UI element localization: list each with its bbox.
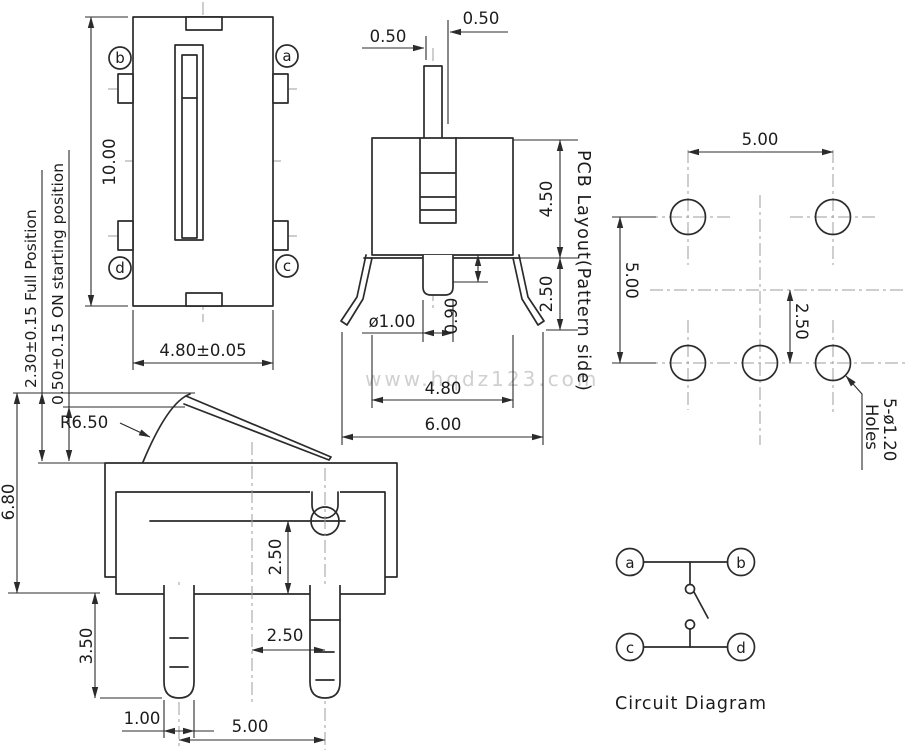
dim-pcb-pitch-y: 5.00 bbox=[622, 262, 641, 299]
dim-pin-width: ø1.00 bbox=[369, 312, 416, 331]
pcb-holes-note-line2: Holes bbox=[862, 404, 881, 450]
circuit-diagram: a b c d Circuit Diagram bbox=[615, 549, 767, 715]
circuit-diagram-caption: Circuit Diagram bbox=[615, 694, 767, 714]
pcb-holes-note-line1: 5-ø1.20 bbox=[880, 398, 899, 461]
switch-arm bbox=[694, 592, 708, 618]
note-on-starting: 0.50±0.15 ON starting position bbox=[49, 163, 67, 405]
circuit-label-tl: a bbox=[625, 554, 634, 572]
dim-bracket-drop: 2.50 bbox=[537, 276, 556, 313]
dim-body-height: 4.50 bbox=[537, 181, 556, 218]
dim-leg-pitch: 5.00 bbox=[232, 717, 269, 736]
dim-stem-left: 0.50 bbox=[370, 27, 407, 46]
terminal-label-tl: b bbox=[115, 49, 125, 67]
dim-body-width: 4.80 bbox=[425, 379, 462, 398]
datasheet-drawing: www.hqdz123.com b a d c 10.00 4.80±0.05 bbox=[0, 0, 922, 756]
drawing-canvas: www.hqdz123.com b a d c 10.00 4.80±0.05 bbox=[0, 0, 922, 756]
right-leg bbox=[310, 585, 340, 698]
dim-leg-offset: 2.50 bbox=[267, 626, 304, 645]
terminal-label-tr: a bbox=[282, 47, 291, 65]
terminal-label-br: c bbox=[283, 257, 291, 275]
note-full-position: 2.30±0.15 Full Position bbox=[22, 209, 40, 388]
dim-leg-length: 3.50 bbox=[77, 628, 96, 665]
dim-pcb-pitch-x: 5.00 bbox=[742, 130, 779, 149]
dim-top-view-height: 10.00 bbox=[100, 138, 119, 185]
dim-overall-height: 6.80 bbox=[0, 484, 18, 521]
switch-contact-bottom bbox=[686, 620, 695, 629]
lever-arc bbox=[143, 394, 190, 462]
dim-lever-radius: R6.50 bbox=[60, 413, 108, 432]
left-leg bbox=[164, 585, 194, 698]
lever-blade bbox=[184, 396, 331, 460]
pcb-layout-title: PCB Layout(Pattern side) bbox=[573, 150, 593, 392]
watermark-text: www.hqdz123.com bbox=[365, 367, 599, 391]
dim-pin-length: 0.90 bbox=[442, 298, 461, 335]
dim-stem-right: 0.50 bbox=[463, 9, 500, 28]
top-view: b a d c 10.00 4.80±0.05 bbox=[85, 2, 298, 370]
dim-pcb-offset: 2.50 bbox=[792, 303, 811, 340]
dim-pivot-depth: 2.50 bbox=[266, 539, 285, 576]
dim-top-view-width: 4.80±0.05 bbox=[159, 341, 246, 360]
dim-bracket-span: 6.00 bbox=[425, 415, 462, 434]
circuit-label-tr: b bbox=[736, 554, 746, 572]
front-view-stem bbox=[424, 66, 442, 138]
switch-contact-top bbox=[686, 585, 695, 594]
front-view-pin bbox=[423, 255, 453, 295]
pcb-layout: PCB Layout(Pattern side) 5.00 5.00 2.50 … bbox=[573, 130, 905, 470]
circuit-label-bl: c bbox=[626, 639, 634, 657]
terminal-label-bl: d bbox=[115, 259, 125, 277]
dim-leg-width: 1.00 bbox=[124, 709, 161, 728]
circuit-label-br: d bbox=[736, 639, 746, 657]
